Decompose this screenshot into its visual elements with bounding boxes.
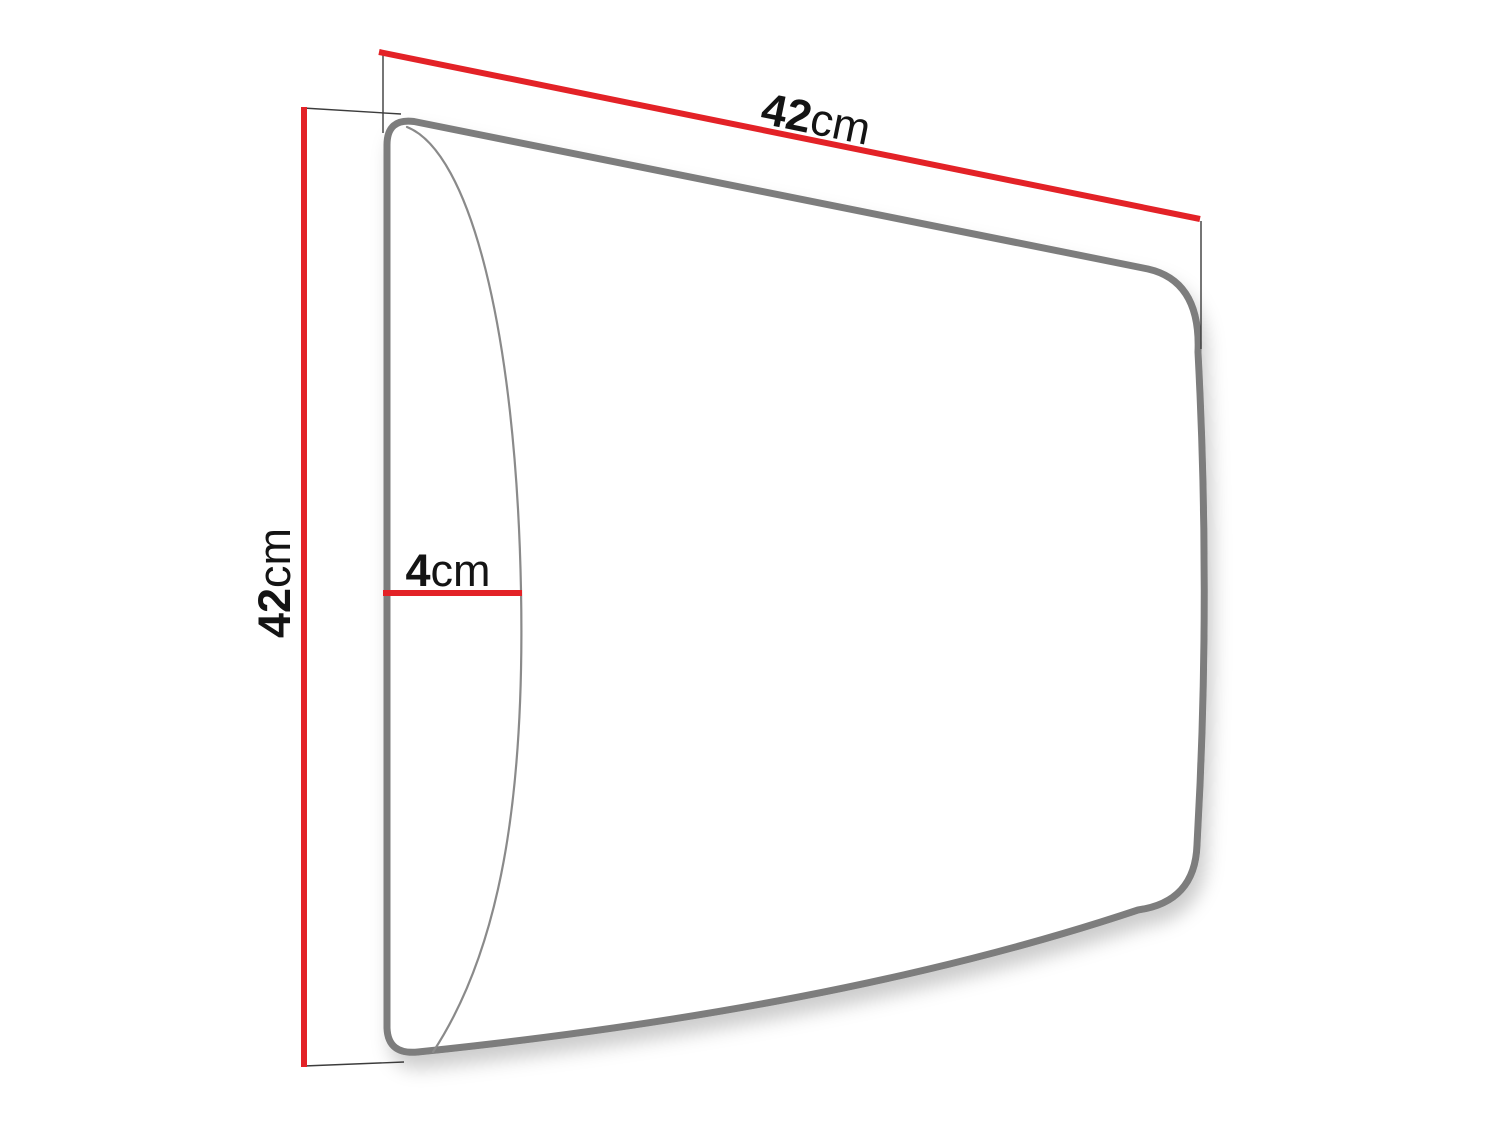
extension-line-top-left-horizontal bbox=[303, 108, 401, 114]
panel-front-outline bbox=[387, 121, 1204, 1052]
depth-unit: cm bbox=[431, 545, 491, 596]
height-value: 42 bbox=[249, 588, 300, 638]
extension-line-bottom-left bbox=[304, 1062, 404, 1066]
panel-dimension-drawing: 42cm 42cm 4cm bbox=[0, 0, 1500, 1125]
height-label: 42cm bbox=[249, 528, 300, 638]
height-unit: cm bbox=[249, 528, 300, 588]
depth-value: 4 bbox=[405, 545, 430, 596]
dimension-diagram: 42cm 42cm 4cm bbox=[0, 0, 1500, 1125]
width-label: 42cm bbox=[757, 83, 875, 155]
width-unit: cm bbox=[806, 93, 875, 155]
depth-label: 4cm bbox=[405, 545, 490, 596]
